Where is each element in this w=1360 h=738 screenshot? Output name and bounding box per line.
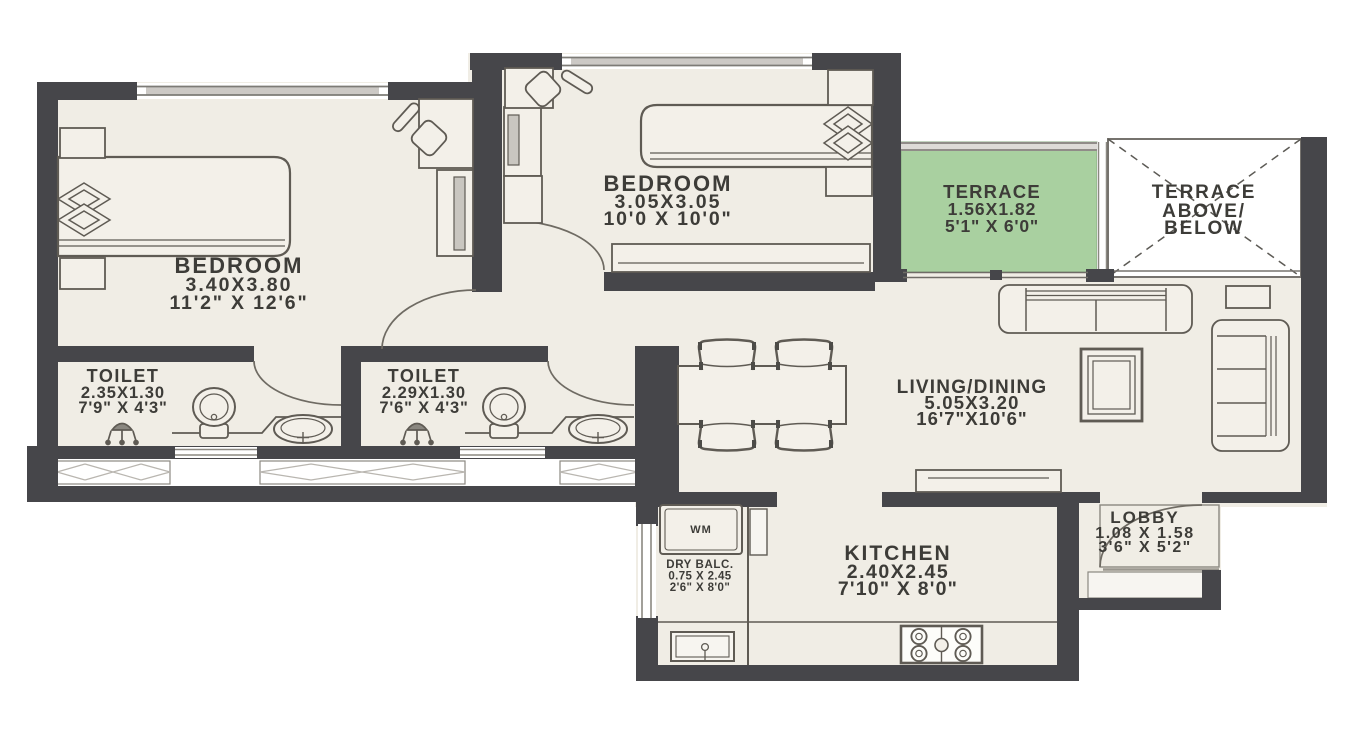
svg-text:TOILET: TOILET [87, 366, 160, 386]
svg-text:TERRACE: TERRACE [1152, 182, 1256, 203]
svg-text:WM: WM [690, 524, 712, 536]
svg-text:11'2" X 12'6": 11'2" X 12'6" [169, 292, 308, 314]
svg-text:7'10" X 8'0": 7'10" X 8'0" [838, 578, 958, 600]
svg-text:DRY BALC.: DRY BALC. [666, 559, 733, 571]
svg-text:16'7"X10'6": 16'7"X10'6" [916, 408, 1027, 429]
svg-text:10'0 X 10'0": 10'0 X 10'0" [603, 208, 732, 230]
svg-text:0.75 X 2.45: 0.75 X 2.45 [668, 571, 731, 583]
svg-text:7'6" X 4'3": 7'6" X 4'3" [379, 399, 468, 417]
svg-text:3'6" X 5'2": 3'6" X 5'2" [1098, 539, 1191, 556]
svg-text:7'9" X 4'3": 7'9" X 4'3" [78, 399, 167, 417]
svg-text:TOILET: TOILET [388, 366, 461, 386]
svg-text:BELOW: BELOW [1164, 218, 1244, 239]
svg-text:5'1" X 6'0": 5'1" X 6'0" [945, 216, 1039, 236]
svg-text:2'6" X 8'0": 2'6" X 8'0" [670, 582, 730, 594]
